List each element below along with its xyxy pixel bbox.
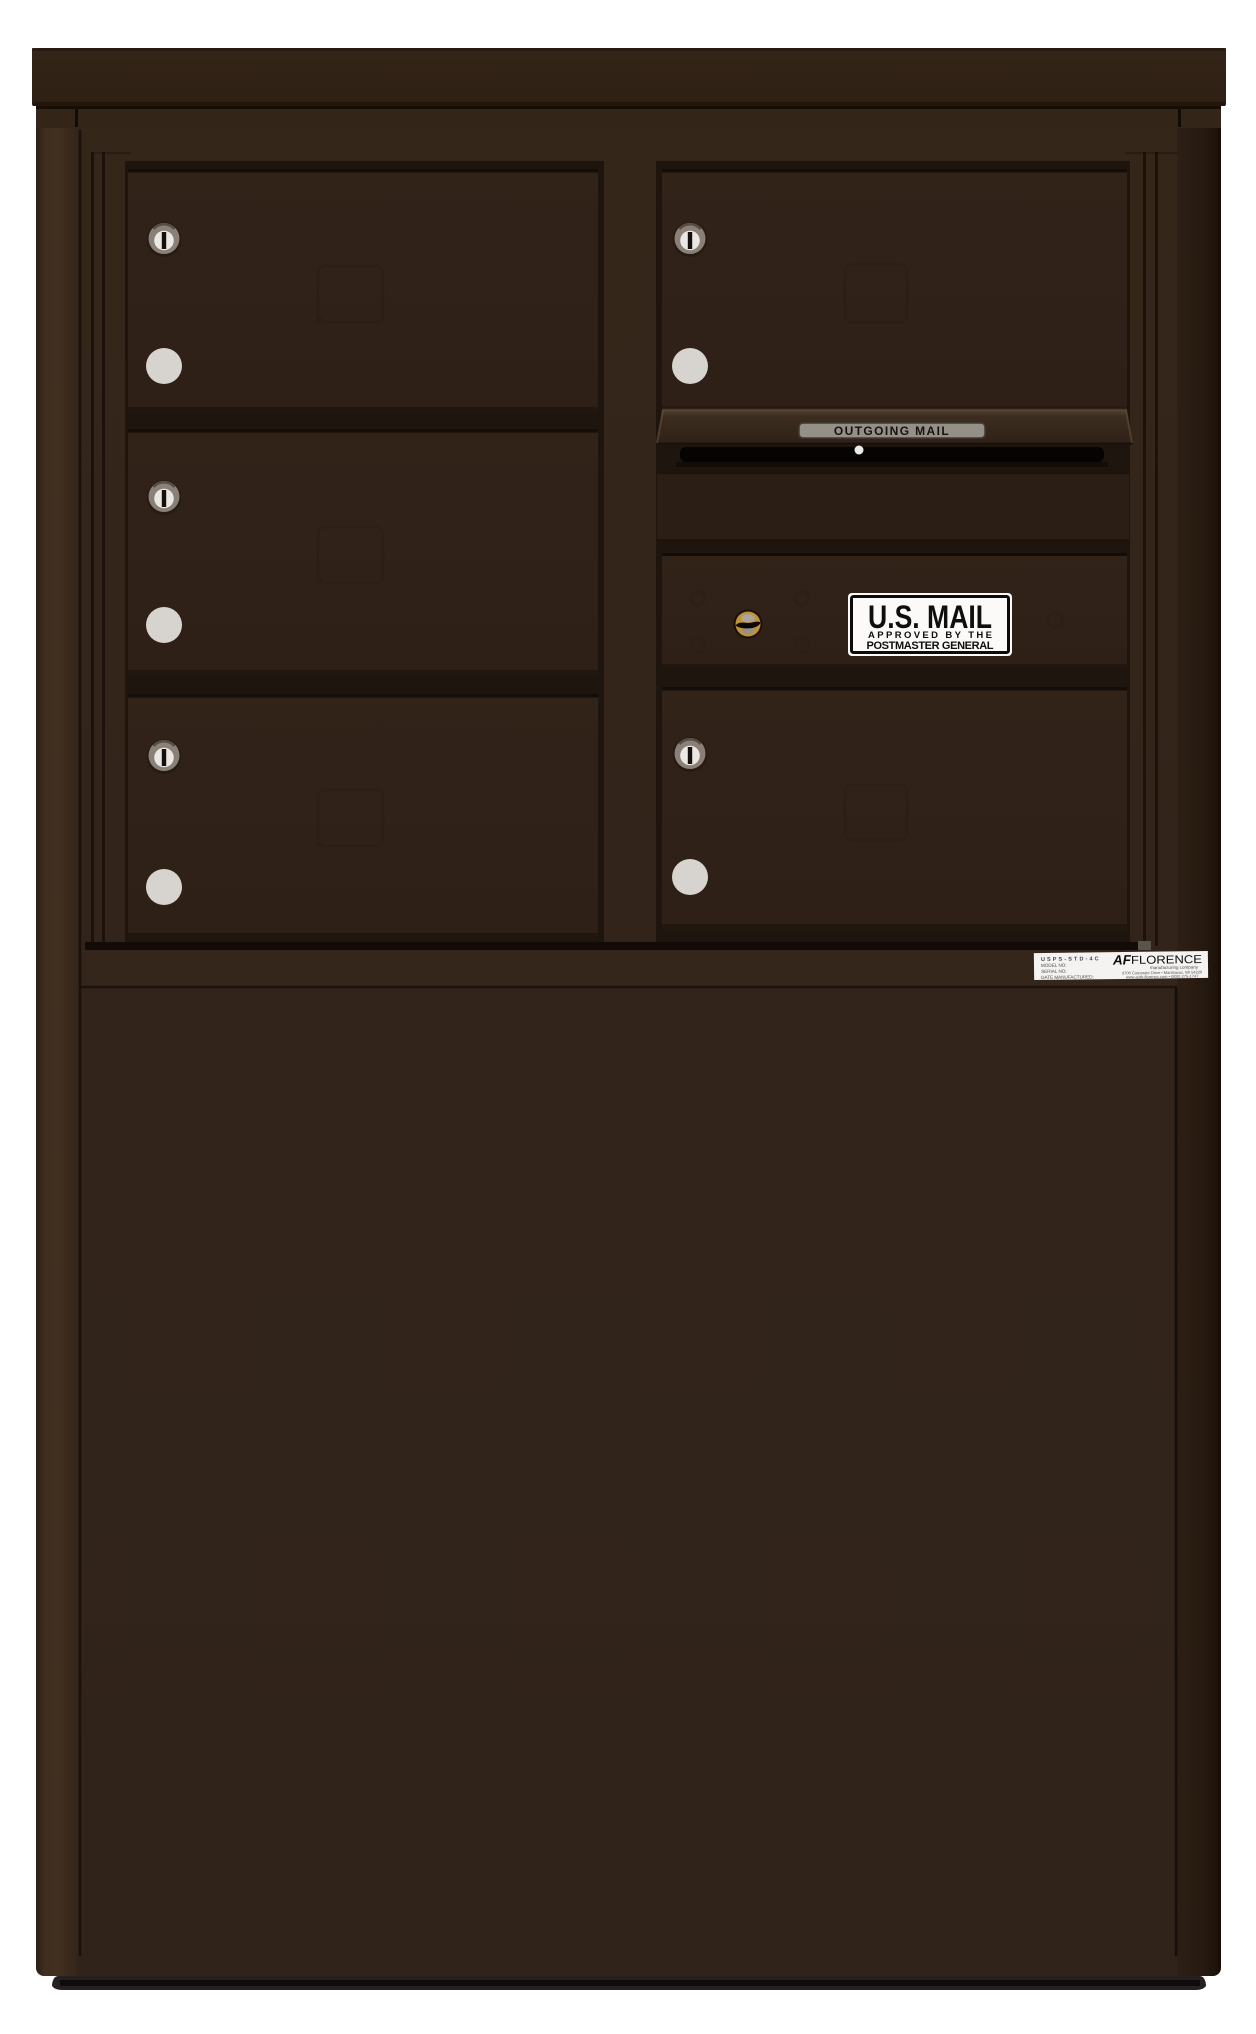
svg-text:DATE MANUFACTURED:: DATE MANUFACTURED: bbox=[1041, 974, 1094, 980]
svg-text:www.auth-florence.com • (800): www.auth-florence.com • (800) 275-1747 bbox=[1126, 974, 1199, 980]
svg-text:OUTGOING MAIL: OUTGOING MAIL bbox=[834, 424, 950, 438]
svg-text:SERIAL NO:: SERIAL NO: bbox=[1041, 969, 1067, 974]
svg-text:MODEL NO:: MODEL NO: bbox=[1041, 963, 1067, 968]
svg-text:AF: AF bbox=[1112, 952, 1132, 967]
svg-text:POSTMASTER GENERAL: POSTMASTER GENERAL bbox=[867, 640, 994, 652]
